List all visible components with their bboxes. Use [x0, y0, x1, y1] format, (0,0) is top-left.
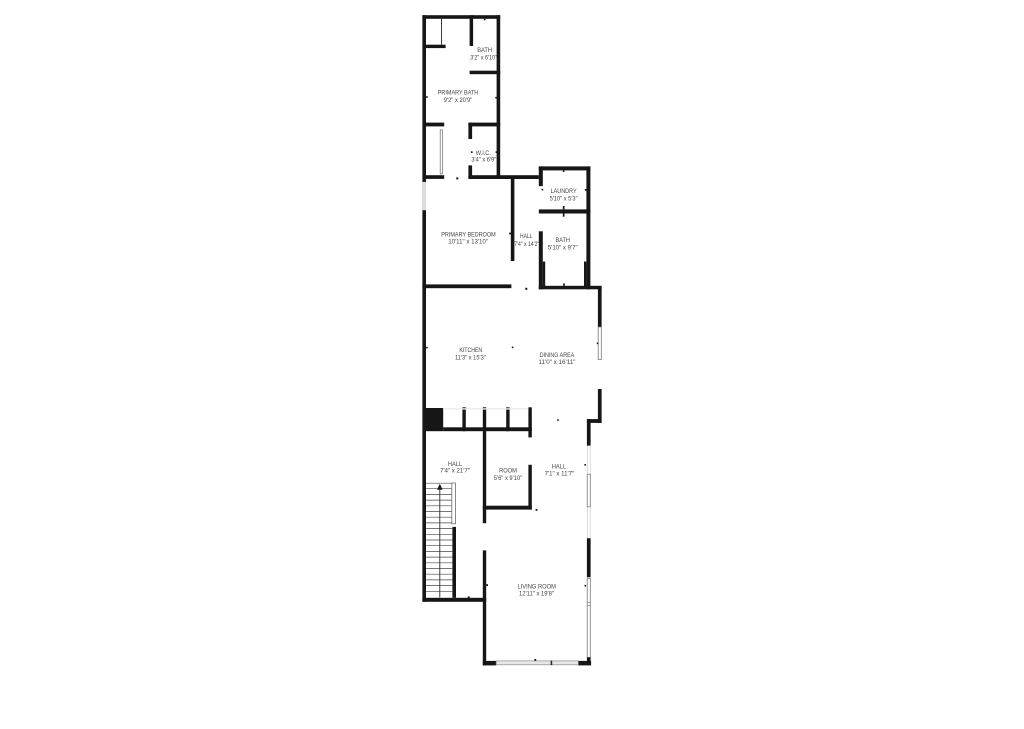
- svg-text:11'3" x 15'3": 11'3" x 15'3": [455, 354, 486, 361]
- svg-text:10'11" x 13'10": 10'11" x 13'10": [448, 238, 488, 245]
- svg-text:ROOM: ROOM: [499, 468, 517, 475]
- svg-text:7'4" x 21'7": 7'4" x 21'7": [440, 468, 470, 475]
- svg-text:5'10" x 5'3": 5'10" x 5'3": [550, 195, 578, 202]
- svg-text:9'2" x 20'9": 9'2" x 20'9": [444, 97, 473, 104]
- svg-text:DINING AREA: DINING AREA: [540, 352, 575, 359]
- svg-text:3'2" x 6'10": 3'2" x 6'10": [470, 55, 497, 62]
- svg-text:7'1" x 11'7": 7'1" x 11'7": [545, 470, 575, 477]
- svg-text:5'10" x 9'7": 5'10" x 9'7": [548, 245, 578, 252]
- svg-text:BATH: BATH: [477, 47, 492, 54]
- svg-text:PRIMARY BATH: PRIMARY BATH: [438, 89, 479, 96]
- svg-text:5'6" x 9'10": 5'6" x 9'10": [494, 475, 522, 482]
- svg-text:3'4" x 6'9": 3'4" x 6'9": [471, 157, 496, 164]
- svg-text:HALL: HALL: [520, 233, 533, 240]
- svg-text:12'11" x 19'8": 12'11" x 19'8": [519, 591, 554, 598]
- svg-text:LIVING ROOM: LIVING ROOM: [517, 584, 556, 591]
- svg-text:7'4" x 14'2": 7'4" x 14'2": [514, 241, 539, 248]
- svg-text:KITCHEN: KITCHEN: [459, 347, 482, 354]
- svg-text:11'0" x 16'11": 11'0" x 16'11": [539, 359, 576, 366]
- svg-text:LAUNDRY: LAUNDRY: [551, 188, 577, 195]
- svg-text:PRIMARY BEDROOM: PRIMARY BEDROOM: [441, 231, 496, 238]
- svg-text:BATH: BATH: [556, 237, 570, 244]
